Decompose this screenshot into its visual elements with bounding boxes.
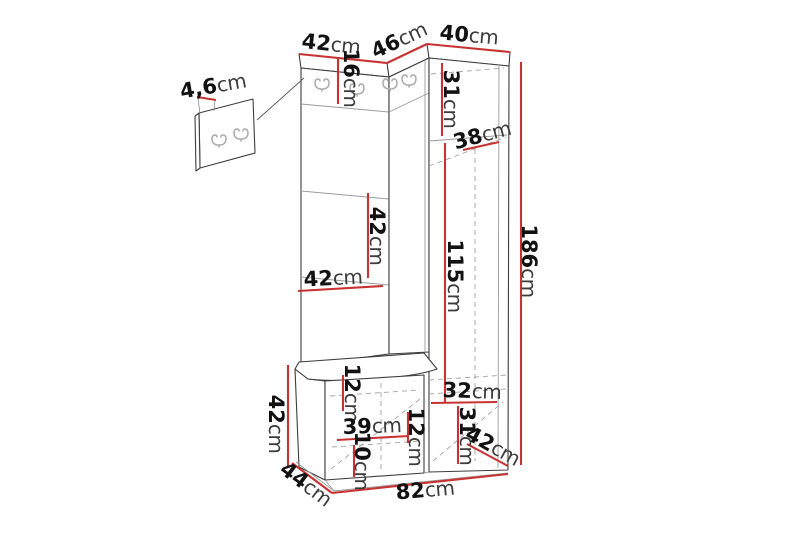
dim-label-bench-height: 42cm	[264, 395, 288, 454]
dim-label-total-height: 186cm	[517, 224, 541, 297]
dim-label-shelf-width: 42cm	[303, 264, 363, 291]
dim-label-detail-thickness: 4,6cm	[178, 68, 248, 103]
detail-leader-line	[257, 78, 304, 120]
furniture-dimension-diagram: 4,6cm 42cm 46cm 40cm 16cm 31cm 38cm 115c…	[0, 0, 800, 533]
dim-label-hook-panel-height: 16cm	[339, 49, 363, 108]
dim-label-door-height: 115cm	[443, 239, 467, 312]
dim-label-wardrobe-bottom-width: 32cm	[442, 378, 502, 404]
detail-panel-thickness-edge	[195, 113, 200, 171]
dim-label-total-width: 82cm	[395, 475, 456, 504]
diagram-stage: 4,6cm 42cm 46cm 40cm 16cm 31cm 38cm 115c…	[0, 0, 800, 533]
dim-label-top-width-right: 40cm	[439, 20, 500, 49]
dim-label-bench-inner-right: 12cm	[404, 408, 428, 467]
dim-label-wardrobe-top-height: 31cm	[439, 70, 463, 129]
detail-panel-face	[199, 99, 255, 168]
dim-label-shelf-gap-height: 42cm	[365, 207, 389, 266]
dim-label-bench-bottom-gap: 10cm	[350, 432, 374, 491]
